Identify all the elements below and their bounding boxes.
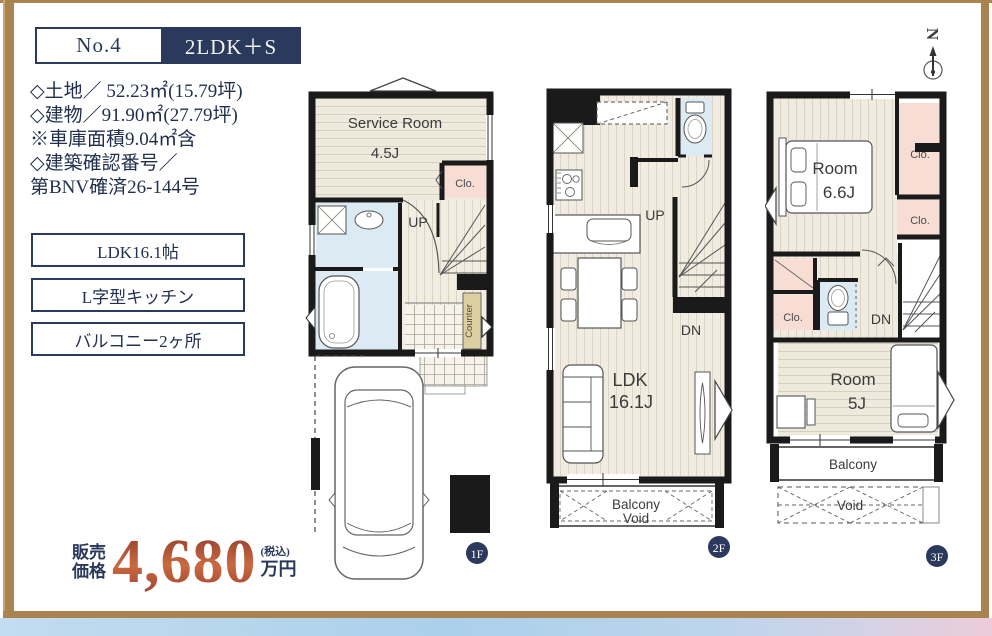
kitchen-counter-icon: [553, 215, 640, 253]
frame-right-border: [981, 0, 989, 618]
car-icon: [329, 367, 429, 579]
frame-top-border: [0, 0, 992, 3]
sofa-icon: [563, 365, 603, 463]
floor-badge-2f-label: 2F: [713, 541, 726, 555]
detail-building: ◇建物／91.90㎡(27.79坪): [30, 104, 310, 128]
compass-pivot: [931, 70, 935, 74]
counter-label: Counter: [464, 304, 475, 338]
sink-icon: [355, 211, 383, 229]
price-prefix: 販売 価格: [72, 543, 106, 581]
storage-dashed-area: [597, 102, 667, 124]
room-sub-size-label: 5J: [848, 394, 866, 413]
balcony-3f: Balcony: [770, 444, 943, 482]
feature-kitchen: L字型キッチン: [31, 278, 245, 312]
layout-type-badge: 2LDK＋S: [161, 27, 301, 64]
bed-icon-sub: [891, 345, 937, 432]
floorplan-2f: UP DN LDK 16.1J: [545, 85, 735, 565]
dn-label-3f: DN: [871, 311, 891, 327]
void-label-2f: Void: [623, 511, 649, 526]
price-unit: 万円: [261, 559, 297, 579]
service-room-label: Service Room: [348, 115, 442, 132]
feature-ldk: LDK16.1帖: [31, 233, 245, 267]
room-main-label: Room: [812, 159, 857, 178]
up-label-2f: UP: [645, 207, 664, 223]
service-room-size-label: 4.5J: [371, 145, 399, 162]
detail-confirmation-number: 第BNV確済26-144号: [30, 176, 310, 200]
closet-label-1f: Clo.: [455, 178, 475, 190]
price-amount: 4,680: [112, 531, 257, 593]
frame-left-border: [3, 0, 14, 618]
floorplan-1f: UP Counter: [305, 75, 570, 585]
bottom-gradient-strip: [0, 618, 992, 636]
price-prefix-line2: 価格: [72, 562, 106, 581]
price-suffix: (税込) 万円: [261, 546, 297, 579]
closet2-label: Clo.: [910, 215, 930, 227]
balcony-void-2f: Balcony Void: [550, 483, 724, 528]
room-main-size-label: 6.6J: [823, 183, 855, 202]
closet3-label: Clo.: [783, 312, 803, 324]
porch-tile: [420, 356, 487, 386]
compass-north-label: N: [923, 28, 942, 41]
desk-icon: [777, 396, 815, 428]
floor-badge-1f-label: 1F: [471, 547, 484, 561]
tv-board-icon: [695, 372, 710, 454]
feature-balcony: バルコニー2ヶ所: [31, 322, 245, 356]
compass-icon: N: [903, 22, 963, 94]
price-block: 販売 価格 4,680 (税込) 万円: [72, 531, 297, 593]
compass-arrowhead: [930, 46, 937, 56]
flyer-page: No.4 2LDK＋S ◇土地／ 52.23㎡(15.79坪) ◇建物／91.9…: [0, 0, 992, 636]
toilet-icon-2f: [684, 102, 706, 143]
detail-garage: ※車庫面積9.04㎡含: [30, 128, 310, 152]
void-3f: Void: [778, 487, 939, 523]
detail-confirmation: ◇建築確認番号／: [30, 152, 310, 176]
void-label-3f: Void: [837, 498, 863, 513]
frame-bottom-border: [3, 611, 989, 618]
room-sub-label: Room: [830, 370, 875, 389]
detail-land: ◇土地／ 52.23㎡(15.79坪): [30, 80, 310, 104]
dn-label-2f: DN: [681, 322, 701, 338]
ldk-size-label: 16.1J: [609, 392, 653, 412]
stove-icon: [556, 170, 582, 200]
entrance-tile: [405, 305, 463, 351]
up-label-1f: UP: [408, 214, 427, 230]
price-tax-note: (税込): [261, 546, 297, 559]
ldk-label: LDK: [612, 370, 647, 390]
property-details: ◇土地／ 52.23㎡(15.79坪) ◇建物／91.90㎡(27.79坪) ※…: [30, 80, 310, 200]
bathtub-icon: [319, 276, 359, 348]
shower-pan-icon: [553, 123, 583, 153]
floorplan-3f: DN Room 6.6J Clo. Clo. Clo. Room 5J: [765, 88, 955, 573]
lot-number-box: No.4: [35, 27, 163, 64]
floor-badge-3f-label: 3F: [931, 550, 944, 564]
porch-step: [425, 386, 465, 394]
balcony-label-3f: Balcony: [829, 457, 877, 472]
garage-post-block: [450, 475, 490, 533]
balcony-label-2f: Balcony: [612, 497, 660, 512]
washing-machine-pan-icon: [318, 206, 346, 234]
price-prefix-line1: 販売: [72, 543, 106, 562]
wall-block-2f: [550, 92, 600, 125]
